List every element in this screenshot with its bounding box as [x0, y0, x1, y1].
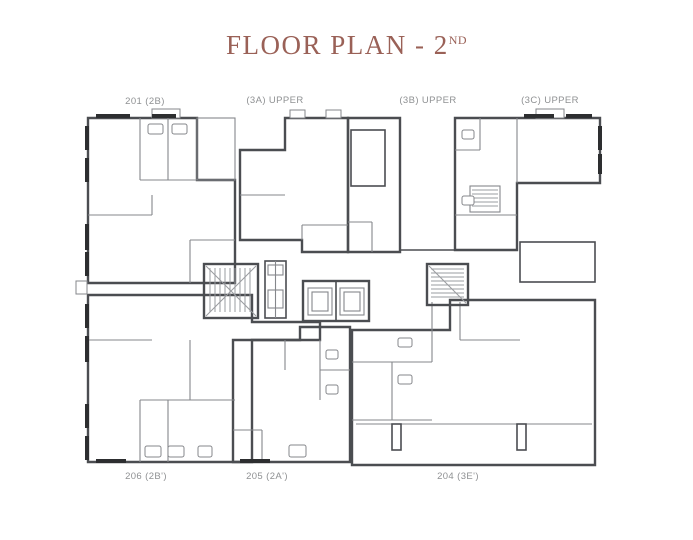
unit-label-3a: (3A) UPPER — [246, 95, 303, 106]
balcony-columns — [392, 424, 526, 450]
open-terrace — [520, 242, 595, 282]
elevator-bank — [303, 281, 369, 321]
floor-plan-page: FLOOR PLAN - 2ND — [0, 0, 693, 540]
bathroom-fixtures — [145, 124, 474, 457]
unit-label-3c: (3C) UPPER — [521, 95, 579, 106]
unit-label-3b: (3B) UPPER — [399, 95, 456, 106]
staircase-east — [427, 264, 468, 305]
unit-3a-floor-area — [240, 118, 348, 252]
interior-partitions — [88, 118, 595, 462]
unit-label-206: 206 (2B') — [125, 471, 167, 482]
unit-206-floor-area — [88, 295, 320, 462]
unit-3c-floor-area — [455, 118, 600, 250]
void-room — [351, 130, 385, 186]
unit-204-floor-area — [352, 300, 595, 465]
unit-label-205: 205 (2A') — [246, 471, 288, 482]
unit-201-floor-area — [88, 118, 235, 283]
service-shaft — [265, 261, 286, 318]
staircase-west — [204, 264, 258, 318]
unit-3b-floor-area — [348, 118, 400, 252]
unit-label-201: 201 (2B) — [125, 96, 165, 107]
floor-plan-drawing — [0, 0, 693, 540]
unit-label-204: 204 (3E') — [437, 471, 479, 482]
